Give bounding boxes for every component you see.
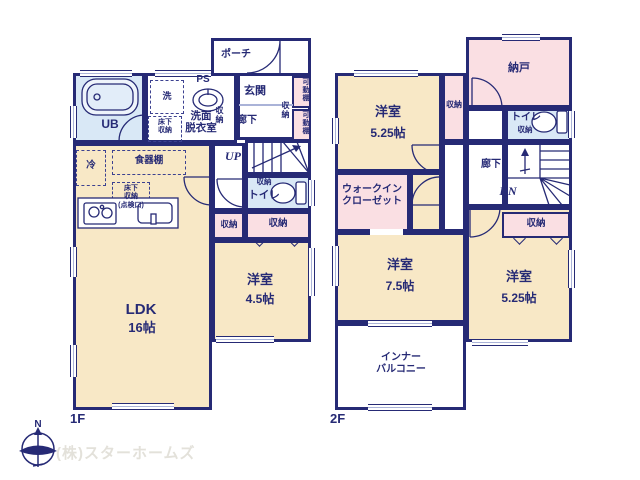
label-fridge: 冷 [78, 160, 104, 171]
room-unit-bath [73, 73, 145, 143]
label-closet-2f-hall: 収納 [443, 100, 465, 109]
window [80, 70, 132, 77]
hall-2f-upper [466, 108, 505, 142]
label-dn: DN [497, 184, 519, 198]
window [308, 180, 315, 206]
label-room525b: 洋室 [496, 269, 542, 284]
label-entrance: 玄関 [230, 85, 280, 98]
window [332, 118, 339, 144]
window [332, 246, 339, 286]
label-floor1: 1F [70, 411, 98, 426]
window [216, 336, 274, 343]
floorplan-canvas: ポーチ 玄関 廊下 UP UB 洗 PS 洗面 脱衣室 床下 収納 収納 収納 … [0, 0, 640, 480]
window [70, 345, 77, 377]
window [70, 247, 77, 277]
company-watermark: (株)スターホームズ [56, 442, 196, 463]
label-up: UP [222, 149, 244, 163]
window [70, 106, 77, 138]
compass-icon [19, 427, 57, 467]
label-room75-size: 7.5帖 [378, 279, 422, 293]
room-youshitsu-75 [335, 232, 466, 323]
room-youshitsu-45 [212, 240, 311, 342]
label-ldk: LDK [116, 301, 166, 319]
window [368, 320, 432, 327]
label-balcony-line2: バルコニー [368, 364, 434, 376]
label-washer: 洗 [158, 91, 176, 102]
label-toilet-1f-storage: 収納 [250, 178, 278, 187]
label-closet-1f-small: 収納 [214, 219, 244, 229]
label-storeroom: 納戸 [497, 62, 541, 75]
label-unit-bath: UB [88, 117, 132, 131]
room-youshitsu-75-alcove [410, 172, 442, 232]
label-closet-1f-wide: 収納 [262, 218, 294, 229]
label-room525a-size: 5.25帖 [361, 126, 415, 140]
label-cupboard: 食器棚 [117, 155, 181, 166]
hall-2f-left [442, 142, 466, 232]
window [354, 70, 418, 77]
label-wic-line1: ウォークイン [336, 184, 408, 196]
label-balcony-line1: インナー [368, 352, 434, 364]
label-room75: 洋室 [377, 257, 423, 272]
label-underfloor-line2: 収納 [149, 127, 181, 135]
label-kitchen-underfloor-line3: (点検口) [112, 202, 150, 210]
room-youshitsu-525-top [335, 73, 442, 172]
compass-north-label: N [31, 419, 45, 431]
window [472, 339, 528, 346]
label-kitchen-underfloor-line1: 床下 [112, 185, 150, 193]
stairs-1f [245, 140, 311, 175]
label-underfloor-line1: 床下 [149, 119, 181, 127]
label-storage-washroom: 収納 [211, 106, 224, 124]
wic-opening [370, 229, 403, 235]
label-wic: ウォークイン クローゼット [336, 184, 408, 208]
window [368, 404, 432, 411]
label-toilet-2f-storage: 収納 [511, 126, 539, 135]
label-movable-shelf-bottom: 可動棚 [294, 111, 309, 135]
label-floor2: 2F [330, 411, 358, 426]
label-room525a: 洋室 [365, 104, 411, 119]
window [112, 403, 174, 410]
label-room45: 洋室 [237, 272, 283, 287]
label-movable-shelf-top: 可動棚 [294, 78, 309, 102]
label-toilet-1f: トイレ [242, 189, 286, 201]
label-room45-size: 4.5帖 [236, 292, 284, 306]
window [568, 111, 575, 138]
label-room525b-size: 5.25帖 [492, 291, 546, 305]
label-porch: ポーチ [206, 49, 266, 61]
label-balcony: インナー バルコニー [368, 352, 434, 376]
label-underfloor: 床下 収納 [149, 119, 181, 136]
window [308, 248, 315, 296]
label-hallway-2f: 廊下 [468, 159, 514, 171]
label-toilet-2f: トイレ [506, 112, 546, 124]
label-wic-line2: クローゼット [336, 196, 408, 208]
label-ldk-size: 16帖 [116, 320, 168, 335]
label-pipe-space: PS [190, 74, 216, 86]
label-kitchen-underfloor: 床下 収納 (点検口) [112, 185, 150, 210]
label-closet-2f-bedroom: 収納 [519, 218, 553, 229]
window [502, 34, 540, 41]
label-kitchen-underfloor-line2: 収納 [112, 193, 150, 201]
window [568, 250, 575, 288]
label-storage-hall: 収納 [277, 101, 290, 119]
